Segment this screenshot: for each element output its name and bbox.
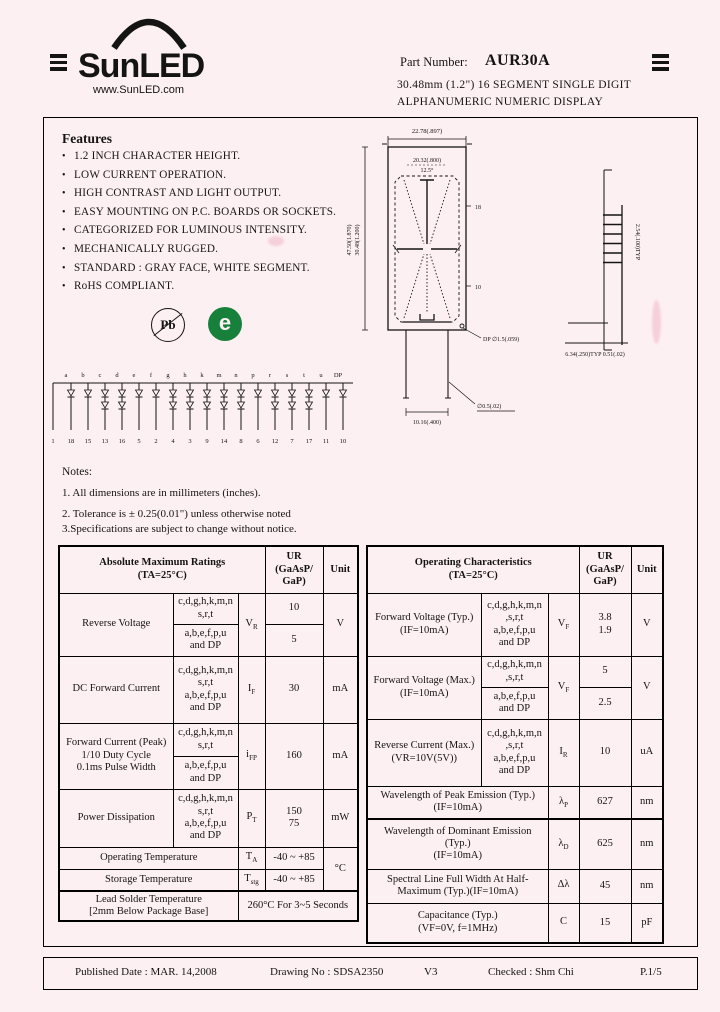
value-cell: 10 [265,593,323,624]
oc-title-cell: Operating Characteristics(TA=25°C) [367,546,579,593]
unit-cell: °C [323,847,358,891]
segment-label: m [216,372,221,379]
front-view-leads [403,330,451,398]
datasheet-page: SunLED www.SunLED.com Part Number: AUR30… [0,0,720,1012]
logo-arc [106,11,192,51]
pin-number: 12 [272,438,279,445]
pin-number: 18 [68,438,75,445]
bullet-icon: • [62,188,74,199]
segment-groups: c,d,g,h,k,m,n,s,r,t a,b,e,f,p,uand DP [481,593,548,656]
bullet-icon: • [62,170,74,181]
dim-lead-diameter: ∅0.5(.02) [477,403,501,410]
value-cell: -40 ~ +85 [265,847,323,869]
value-cell: 2.5 [579,687,631,719]
unit-cell: mA [323,656,358,723]
bullet-icon: • [62,244,74,255]
value-cell: 160 [265,723,323,789]
symbol-delta-lambda: Δλ [548,869,579,903]
param-dominant-wavelength: Wavelength of Dominant Emission(Typ.)(IF… [367,819,548,869]
unit-cell: nm [631,819,663,869]
bullet-icon: • [62,225,74,236]
digit-top-center-segment [420,180,434,244]
param-peak-wavelength: Wavelength of Peak Emission (Typ.)(IF=10… [367,786,548,819]
unit-cell: mW [323,789,358,847]
value-cell: -40 ~ +85 [265,869,323,891]
symbol-tstg: Tstg [238,869,265,891]
unit-cell: nm [631,869,663,903]
pin-number: 16 [119,438,126,445]
side-view-base-lines [565,323,628,343]
unit-cell: V [631,593,663,656]
decimal-point [460,324,464,328]
brand-logo: SunLED [78,47,204,86]
scan-artifact [268,236,284,246]
symbol-if: IF [238,656,265,723]
note-3: 3.Specifications are subject to change w… [62,523,297,535]
segment-group-b: a,b,e,f,p,uand DP [173,624,238,656]
segment-label: u [319,372,323,379]
feature-item: •LOW CURRENT OPERATION. [62,169,336,188]
value-cell: 45 [579,869,631,903]
unit-cell: uA [631,719,663,786]
pin-number: 13 [102,438,109,445]
brand-website: www.SunLED.com [93,84,184,96]
note-2: 2. Tolerance is ± 0.25(0.01") unless oth… [62,508,291,520]
features-list: •1.2 INCH CHARACTER HEIGHT. •LOW CURRENT… [62,150,336,299]
unit-cell: nm [631,786,663,819]
value-cell: 15075 [265,789,323,847]
pin-number: 5 [137,438,140,445]
internal-circuit-diagram: abcdefghkmnprstuDP1181513165243914861271… [45,368,385,462]
bullet-icon: • [62,151,74,162]
segment-label: e [133,372,136,379]
segment-label: p [251,372,254,379]
feature-item: •RoHS COMPLIANT. [62,280,336,299]
symbol-ifp: iFP [238,723,265,789]
segment-group-a: c,d,g,h,k,m,n,s,r,t [481,656,548,687]
digit-bottom-cap [420,314,434,320]
segment-label: t [303,372,305,379]
amr-unit-header: Unit [323,546,358,593]
pin-ref-bottom: 10 [475,285,481,291]
symbol-vf: VF [548,656,579,719]
dim-outer-height: 47.50(1.870) [346,225,353,256]
mechanical-drawing: 22.78(.897) 20.32(.800) 12.5° DP ∅1.5(.0… [345,120,695,465]
part-number-label: Part Number: [400,55,468,70]
segment-label: h [183,372,187,379]
param-forward-voltage-max: Forward Voltage (Max.)(IF=10mA) [367,656,481,719]
segment-label: c [99,372,102,379]
feature-item: •CATEGORIZED FOR LUMINOUS INTENSITY. [62,224,336,243]
segment-groups: c,d,g,h,k,m,n,s,r,t a,b,e,f,p,uand DP [481,719,548,786]
oc-unit-header: Unit [631,546,663,593]
amr-title-cell: Absolute Maximum Ratings(TA=25°C) [59,546,265,593]
param-spectral-width: Spectral Line Full Width At Half-Maximum… [367,869,548,903]
footer-page-number: P.1/5 [640,966,662,978]
pin-ref-top: 18 [475,205,481,211]
value-cell: 30 [265,656,323,723]
dim-top-width: 22.78(.897) [412,128,442,135]
value-cell: 10 [579,719,631,786]
part-description-line2: ALPHANUMERIC NUMERIC DISPLAY [397,96,603,108]
param-dc-forward-current: DC Forward Current [59,656,173,723]
param-capacitance: Capacitance (Typ.)(VF=0V, f=1MHz) [367,903,548,943]
value-cell: 3.81.9 [579,593,631,656]
part-description-line1: 30.48mm (1.2") 16 SEGMENT SINGLE DIGIT [397,79,631,91]
pin-number: 10 [340,438,347,445]
param-reverse-voltage: Reverse Voltage [59,593,173,656]
note-1: 1. All dimensions are in millimeters (in… [62,487,261,499]
symbol-pt: PT [238,789,265,847]
bullet-icon: • [62,281,74,292]
pin-number: 9 [205,438,208,445]
value-cell: 625 [579,819,631,869]
pin-number: 17 [306,438,313,445]
segment-label: k [200,372,204,379]
feature-item: •EASY MOUNTING ON P.C. BOARDS OR SOCKETS… [62,206,336,225]
segment-label: g [166,372,170,379]
feature-item: •STANDARD : GRAY FACE, WHITE SEGMENT. [62,262,336,281]
pin-number: 1 [51,438,54,445]
feature-item: •MECHANICALLY RUGGED. [62,243,336,262]
green-recycle-icon: e [208,307,242,341]
segment-label: a [65,372,68,379]
segment-group-b: a,b,e,f,p,uand DP [173,756,238,789]
pin-number: 14 [221,438,228,445]
param-forward-voltage-typ: Forward Voltage (Typ.)(IF=10mA) [367,593,481,656]
pin-number: 11 [323,438,329,445]
operating-characteristics-table: Operating Characteristics(TA=25°C) UR(Ga… [366,545,664,944]
pin-number: 8 [239,438,242,445]
unit-cell: V [323,593,358,656]
unit-cell: mA [323,723,358,789]
param-storage-temperature: Storage Temperature [59,869,238,891]
footer-drawing-number: Drawing No : SDSA2350 [270,966,383,978]
right-menu-bars-icon [652,54,669,74]
dp-label: DP ∅1.5(.059) [483,336,519,343]
symbol-vr: VR [238,593,265,656]
symbol-lambda-d: λD [548,819,579,869]
left-menu-bars-icon [50,54,67,74]
dim-inner-width: 20.32(.800) [413,157,441,164]
segment-groups: c,d,g,h,k,m,ns,r,t a,b,e,f,p,uand DP [173,656,238,723]
param-lead-solder: Lead Solder Temperature[2mm Below Packag… [59,891,238,921]
value-cell: 5 [579,656,631,687]
oc-ur-header: UR(GaAsP/GaP) [579,546,631,593]
segment-group-a: c,d,g,h,k,m,ns,r,t [173,723,238,756]
dim-side-pitch: 2.54(.100)TYP [634,224,641,261]
symbol-ir: IR [548,719,579,786]
notes-title: Notes: [62,466,92,478]
left-dimension-line [362,147,368,330]
footer-bar: Published Date : MAR. 14,2008 Drawing No… [43,957,698,990]
segment-label: f [150,372,153,379]
dim-slant-angle: 12.5° [421,167,435,174]
segment-label: DP [334,372,343,379]
pin-number: 6 [256,438,260,445]
part-number-value: AUR30A [485,52,550,70]
dim-side-bottom: 6.34(.250)TYP 0.51(.02) [565,351,625,358]
pin-number: 4 [171,438,175,445]
segment-label: s [286,372,289,379]
value-cell: 627 [579,786,631,819]
side-view-pins [603,215,622,263]
segment-label: r [269,372,272,379]
param-operating-temperature: Operating Temperature [59,847,238,869]
segment-group-b: a,b,e,f,p,uand DP [481,687,548,719]
footer-version: V3 [424,966,437,978]
value-cell: 5 [265,624,323,656]
pb-free-icon: Pb [151,308,185,342]
segment-group-a: c,d,g,h,k,m,ns,r,t [173,593,238,624]
dim-left-height: 30.48(1.200) [354,225,361,256]
value-cell: 260°C For 3~5 Seconds [238,891,358,921]
param-peak-forward-current: Forward Current (Peak) 1/10 Duty Cycle 0… [59,723,173,789]
segment-label: b [81,372,84,379]
feature-item: •1.2 INCH CHARACTER HEIGHT. [62,150,336,169]
symbol-c: C [548,903,579,943]
param-reverse-current: Reverse Current (Max.)(VR=10V(5V)) [367,719,481,786]
top-dimension-lines [388,136,466,147]
pin-number: 3 [188,438,191,445]
segment-label: n [234,372,238,379]
param-power-dissipation: Power Dissipation [59,789,173,847]
symbol-ta: TA [238,847,265,869]
pin-number: 2 [154,438,157,445]
features-title: Features [62,131,112,147]
symbol-vf: VF [548,593,579,656]
pin-number: 7 [290,438,294,445]
segment-groups: c,d,g,h,k,m,ns,r,t a,b,e,f,p,uand DP [173,789,238,847]
segment-label: d [115,372,119,379]
absolute-maximum-ratings-table: Absolute Maximum Ratings(TA=25°C) UR(GaA… [58,545,359,922]
bullet-icon: • [62,207,74,218]
value-cell: 15 [579,903,631,943]
unit-cell: pF [631,903,663,943]
symbol-lambda-p: λP [548,786,579,819]
footer-published-date: Published Date : MAR. 14,2008 [75,966,217,978]
feature-item: •HIGH CONTRAST AND LIGHT OUTPUT. [62,187,336,206]
pin-number: 15 [85,438,92,445]
dim-lead-span: 10.16(.400) [413,419,441,426]
bullet-icon: • [62,263,74,274]
amr-ur-header: UR(GaAsP/GaP) [265,546,323,593]
unit-cell: V [631,656,663,719]
footer-checked-by: Checked : Shm Chi [488,966,574,978]
